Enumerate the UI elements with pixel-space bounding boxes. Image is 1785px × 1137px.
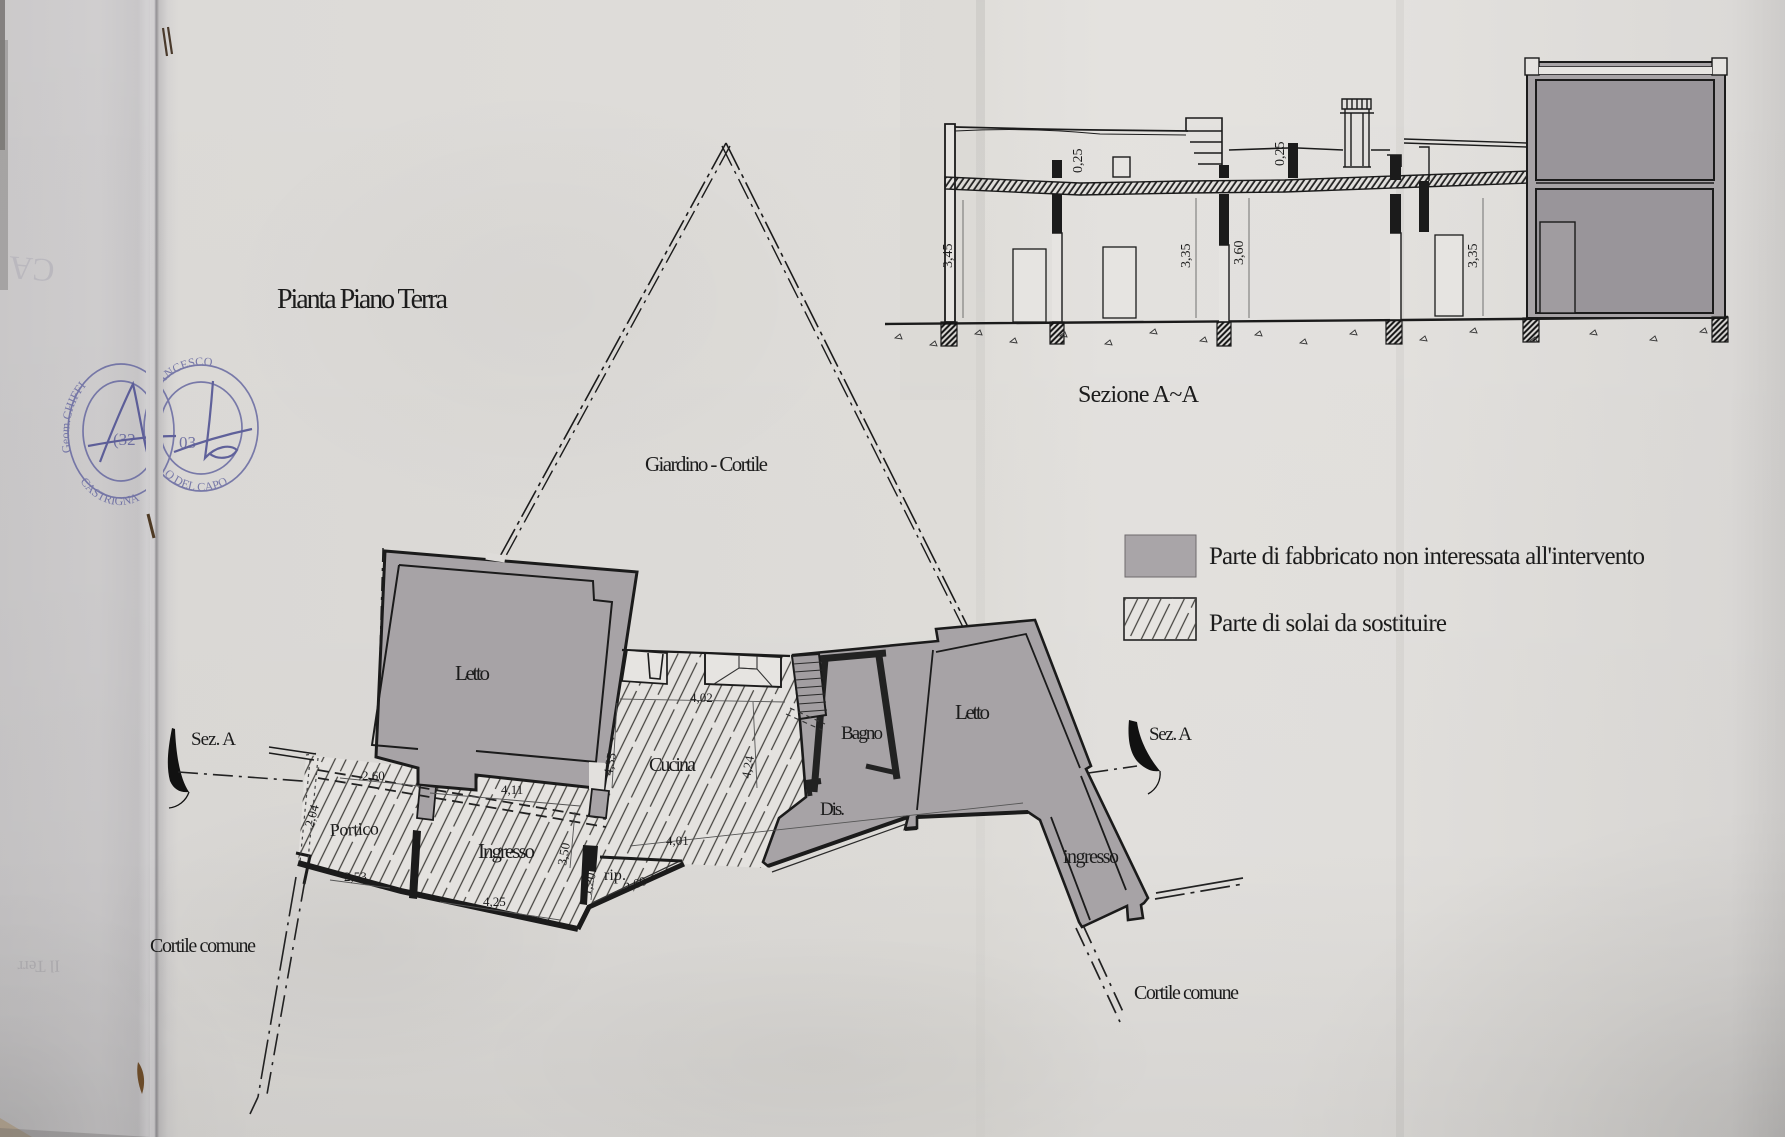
svg-text:Ingresso: Ingresso (478, 839, 535, 863)
svg-text:Bagno: Bagno (841, 723, 883, 744)
svg-text:4,02: 4,02 (690, 690, 713, 705)
svg-text:0,25: 0,25 (1071, 149, 1086, 174)
svg-text:Il Terr: Il Terr (17, 956, 60, 976)
svg-text:3,35: 3,35 (1179, 244, 1194, 269)
svg-text:Sez. A: Sez. A (191, 729, 236, 750)
svg-text:Cortile comune: Cortile comune (1134, 982, 1239, 1004)
svg-text:Sez. A: Sez. A (1149, 724, 1192, 745)
svg-text:Parte di solai da sostituire: Parte di solai da sostituire (1209, 610, 1447, 637)
svg-text:CA: CA (7, 248, 56, 288)
svg-text:Sezione A~A: Sezione A~A (1078, 382, 1200, 408)
svg-text:Parte di fabbricato non intere: Parte di fabbricato non interessata all'… (1209, 543, 1645, 570)
svg-text:2,53: 2,53 (344, 869, 367, 884)
svg-text:Cucina: Cucina (649, 754, 696, 776)
svg-text:Letto: Letto (955, 700, 990, 724)
svg-text:Portico: Portico (329, 818, 379, 840)
svg-text:Giardino - Cortile: Giardino - Cortile (645, 452, 768, 476)
svg-text:Letto: Letto (455, 661, 490, 685)
svg-text:4,01: 4,01 (666, 833, 689, 848)
svg-text:2,60: 2,60 (362, 768, 385, 783)
svg-text:Pianta Piano Terra: Pianta Piano Terra (277, 284, 449, 315)
svg-text:ingresso: ingresso (1063, 846, 1119, 868)
svg-text:Dis.: Dis. (820, 799, 845, 820)
svg-text:0,25: 0,25 (1273, 142, 1288, 167)
svg-text:Cortile comune: Cortile comune (150, 935, 256, 957)
svg-text:3,60: 3,60 (1232, 241, 1247, 266)
svg-text:3,35: 3,35 (1466, 244, 1481, 269)
svg-text:4,11: 4,11 (501, 782, 523, 797)
svg-text:4,25: 4,25 (483, 894, 506, 909)
svg-text:3,45: 3,45 (941, 244, 956, 269)
